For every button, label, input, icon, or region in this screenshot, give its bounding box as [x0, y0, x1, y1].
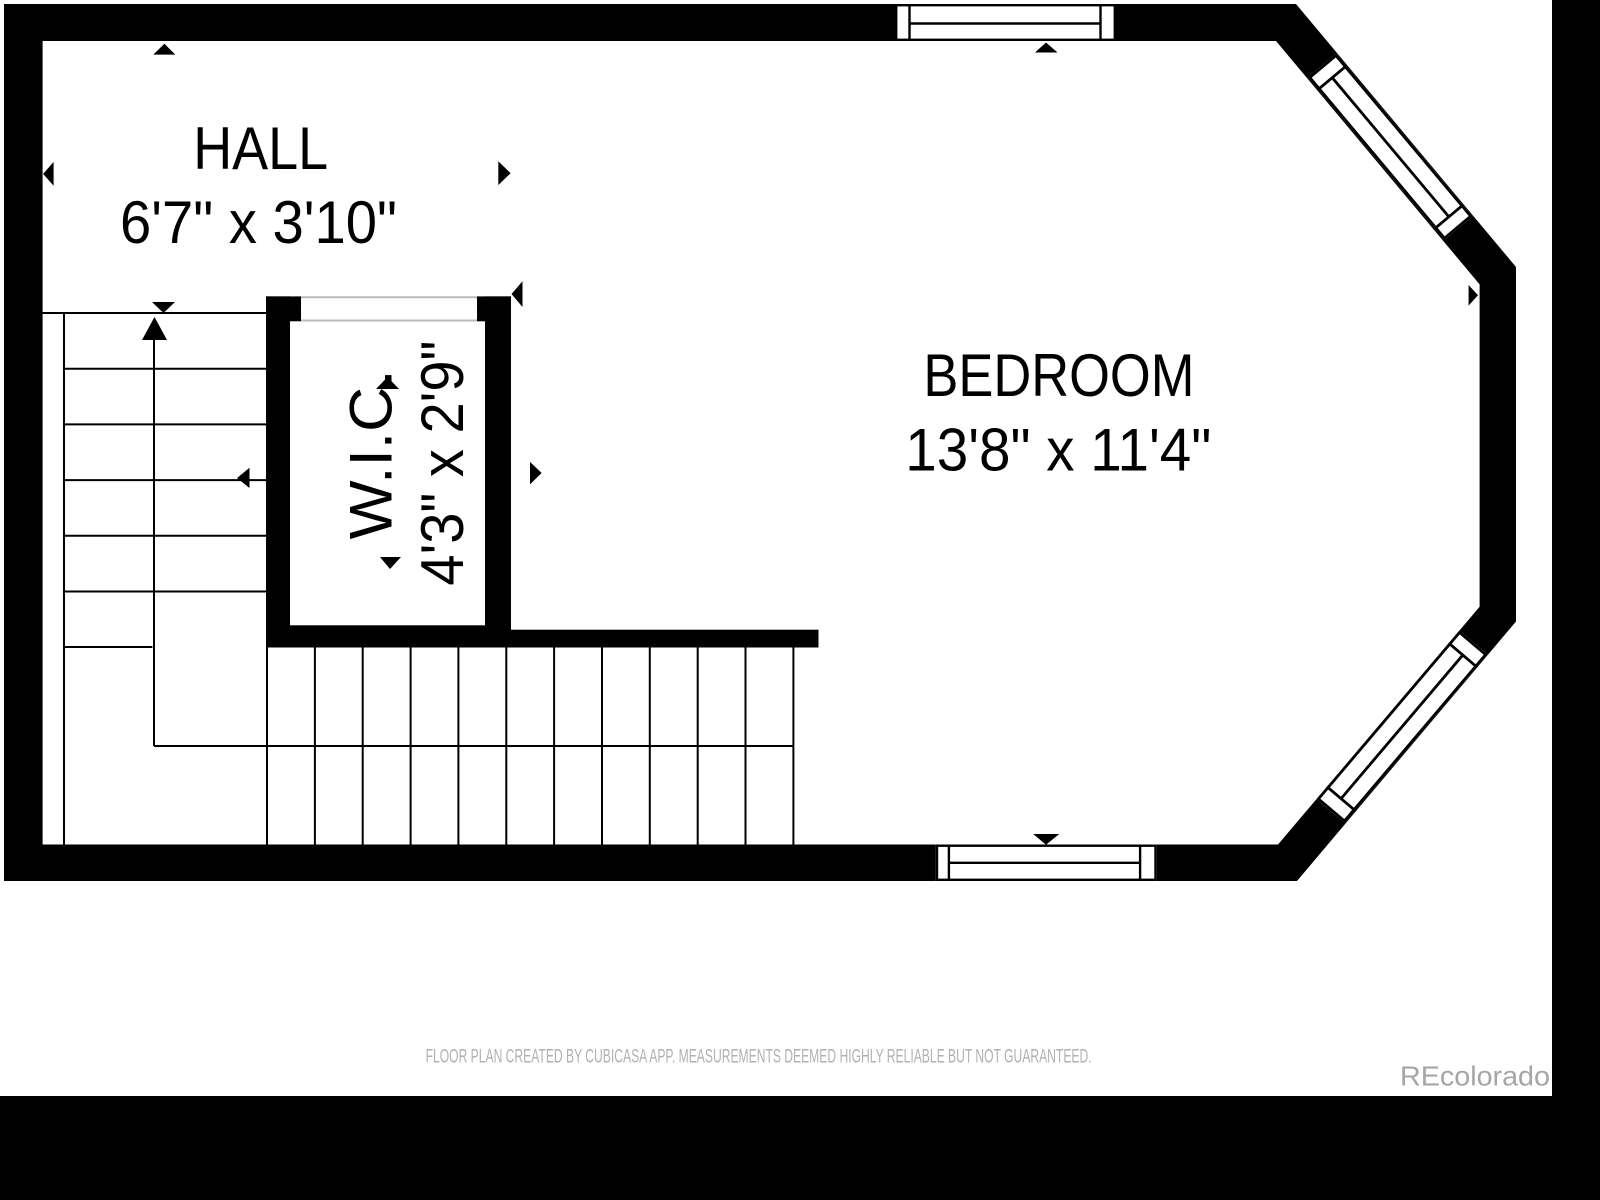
svg-text:BEDROOM: BEDROOM: [923, 342, 1194, 409]
svg-text:13'8" x 11'4": 13'8" x 11'4": [905, 417, 1211, 484]
svg-text:HALL: HALL: [193, 115, 328, 182]
svg-text:4'3" x 2'9": 4'3" x 2'9": [409, 341, 476, 586]
svg-text:6'7" x 3'10": 6'7" x 3'10": [120, 189, 397, 256]
svg-text:REcolorado: REcolorado: [1400, 1061, 1550, 1092]
svg-text:FLOOR PLAN CREATED BY CUBICASA: FLOOR PLAN CREATED BY CUBICASA APP. MEAS…: [426, 1045, 1092, 1067]
svg-text:W.I.C.: W.I.C.: [338, 369, 405, 539]
